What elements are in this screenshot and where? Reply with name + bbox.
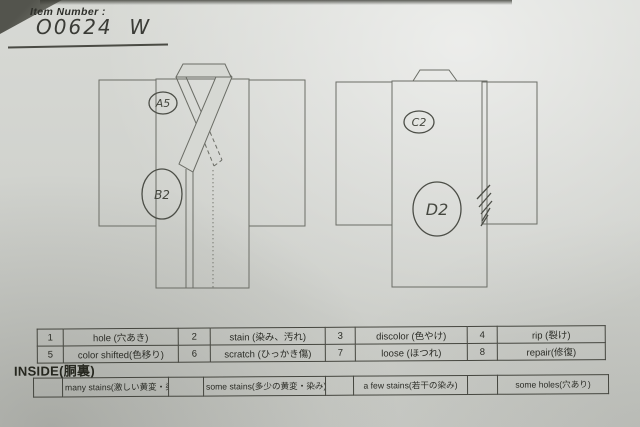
bottom-tables: 1 hole (穴あき) 2 stain (染み、汚れ) 3 discolor … <box>0 0 640 427</box>
inside-checkbox-cell <box>168 377 203 396</box>
defect-legend-table: 1 hole (穴あき) 2 stain (染み、汚れ) 3 discolor … <box>37 325 606 363</box>
legend-label-cell: loose (ほつれ) <box>355 343 467 361</box>
legend-label-cell: stain (染み、汚れ) <box>210 327 325 345</box>
inspection-sheet: Item Number : O0624 W A5 <box>0 0 640 427</box>
inside-option-cell: a few stains(若干の染み) <box>353 375 467 395</box>
legend-label-cell: discolor (色やけ) <box>355 326 467 344</box>
inside-option-cell: many stains(激しい黄変・染み) <box>62 377 168 397</box>
legend-code-cell: 4 <box>467 326 497 343</box>
legend-code-cell: 3 <box>325 327 355 344</box>
inside-checkbox-cell <box>33 378 62 397</box>
legend-code-cell: 6 <box>178 345 210 362</box>
legend-label-cell: rip (裂け) <box>497 326 605 344</box>
legend-label-cell: scratch (ひっかき傷) <box>210 344 325 362</box>
legend-code-cell: 1 <box>37 329 63 346</box>
legend-code-cell: 8 <box>467 343 497 360</box>
legend-label-cell: repair(修復) <box>497 343 605 361</box>
inside-options-table: many stains(激しい黄変・染み) some stains(多少の黄変・… <box>33 374 609 398</box>
inside-option-cell: some holes(穴あり) <box>497 375 608 395</box>
inside-checkbox-cell <box>467 375 497 394</box>
legend-code-cell: 2 <box>178 328 210 345</box>
legend-label-cell: hole (穴あき) <box>63 328 178 346</box>
inside-option-cell: some stains(多少の黄変・染み) <box>203 376 325 396</box>
legend-code-cell: 7 <box>325 344 355 361</box>
inside-checkbox-cell <box>325 376 353 395</box>
